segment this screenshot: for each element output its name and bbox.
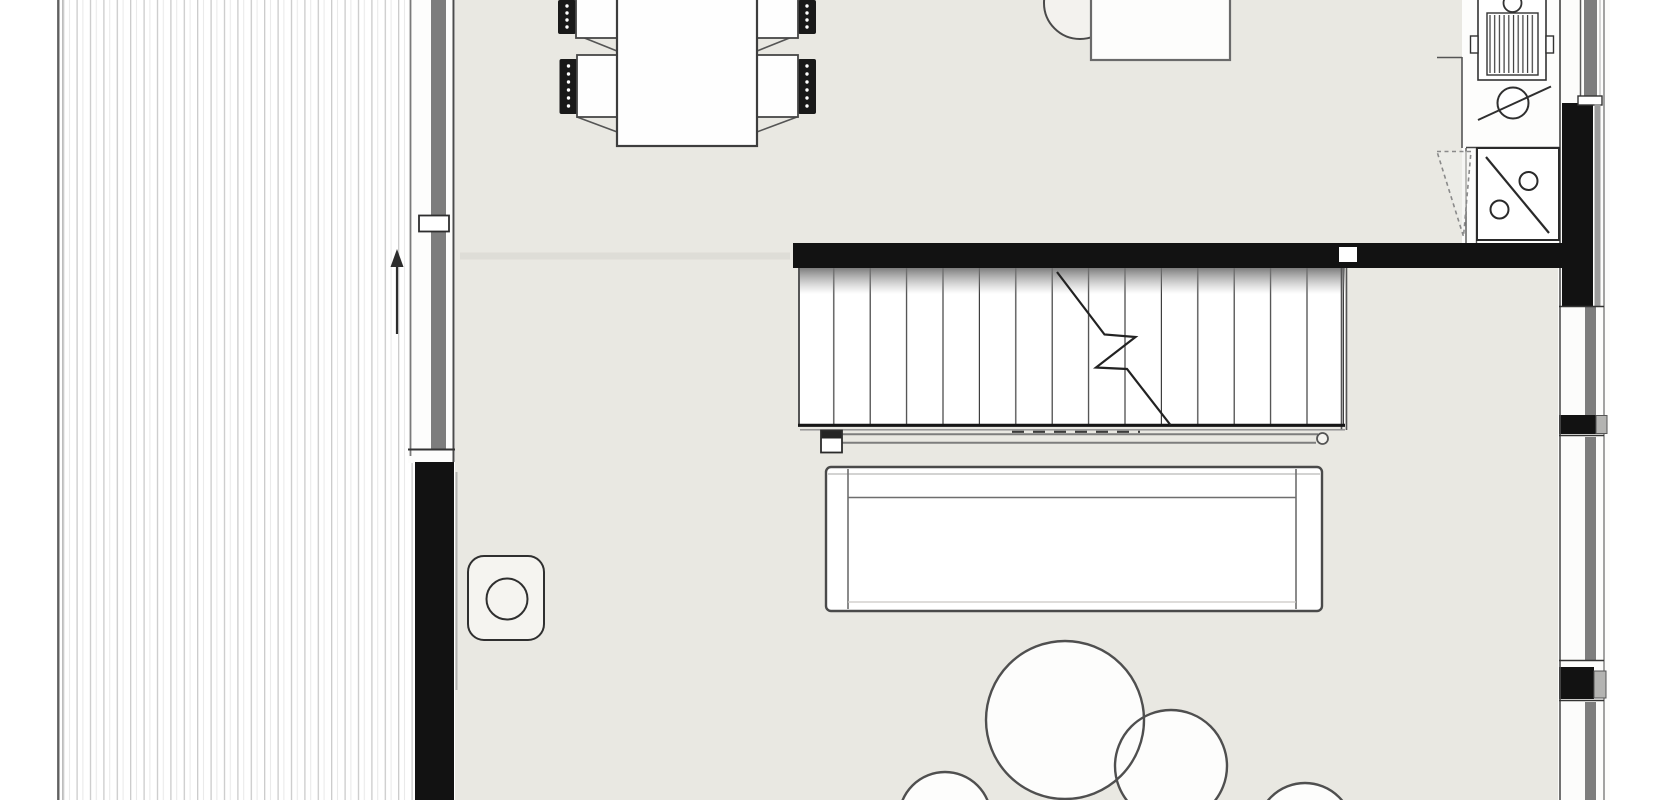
chair-seat	[757, 55, 798, 117]
floorplan-screenshot	[0, 0, 1670, 800]
east-glazing-mid-2	[1585, 437, 1596, 660]
cooktop-burner	[1520, 172, 1538, 190]
partition-wall-notch	[1339, 247, 1357, 262]
east-wall-outer-face	[1595, 104, 1601, 307]
chair-seat	[577, 55, 618, 117]
range	[1471, 0, 1554, 80]
dining-table	[617, 0, 757, 146]
glazing-panel-upper	[431, 0, 446, 216]
east-glazing-bottom	[1585, 702, 1596, 800]
east-pier-cap-mid	[1596, 416, 1607, 434]
chair-seat	[576, 0, 617, 38]
floor-plan-canvas	[0, 0, 1670, 800]
east-pier-cap-lower	[1594, 671, 1606, 698]
deck-boards	[63, 0, 425, 800]
east-glazing-mid-1	[1585, 307, 1596, 415]
range-knob	[1504, 0, 1522, 12]
cooktop	[1477, 148, 1559, 240]
partition-wall	[793, 243, 1593, 268]
dining-set	[558, 0, 816, 146]
cooktop-burner	[1491, 201, 1509, 219]
deck	[57, 0, 430, 800]
range-grill-hatch	[1489, 15, 1536, 73]
sofa-body	[826, 467, 1322, 611]
west-wall-segment	[415, 462, 454, 800]
east-glazing-top	[1584, 0, 1597, 97]
range-tab-right	[1546, 36, 1554, 53]
sofa	[826, 467, 1322, 611]
east-wall-pier-lower	[1559, 667, 1594, 699]
mullion-joint	[419, 216, 449, 232]
east-wall-pier-mid	[1559, 415, 1596, 434]
glazing-panel-lower	[431, 231, 446, 450]
handrail-end-cap	[1317, 433, 1328, 444]
east-mullion-joint	[1578, 96, 1602, 105]
nook-side-table	[1091, 0, 1230, 60]
staircase	[798, 268, 1347, 432]
newel-post-cap	[821, 431, 842, 439]
east-wall-segment-upper	[1562, 103, 1593, 307]
chair-seat	[757, 0, 798, 38]
wood-stove	[468, 556, 544, 640]
range-tab-left	[1471, 36, 1479, 53]
stove-body	[468, 556, 544, 640]
